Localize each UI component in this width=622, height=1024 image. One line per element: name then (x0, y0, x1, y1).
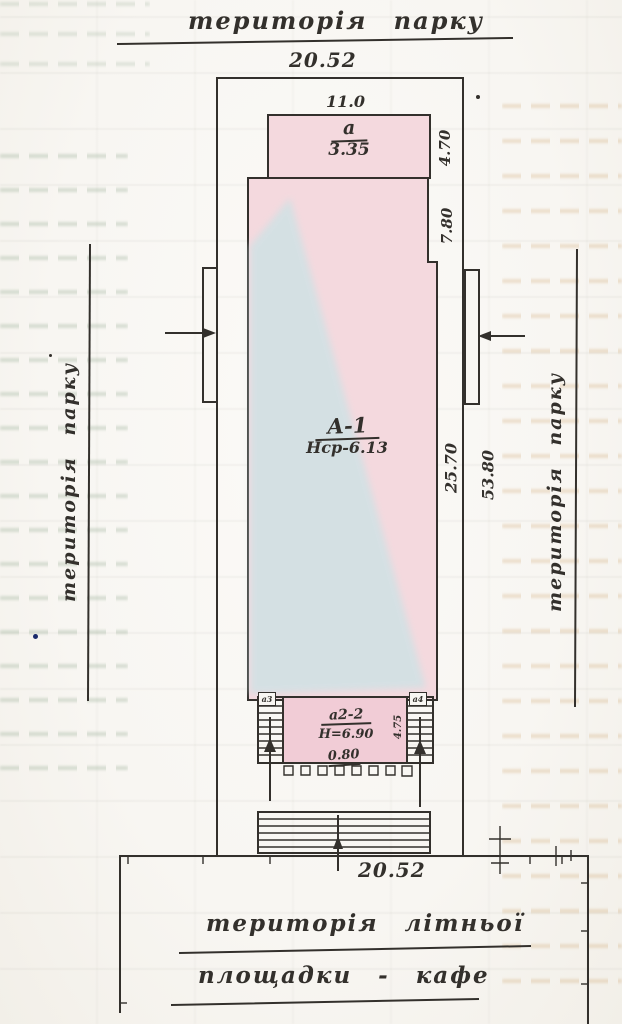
dim-building-length: 25.70 (444, 443, 461, 493)
benchmark-marks (489, 826, 580, 874)
entry-slab-right (465, 270, 479, 404)
stair-right-label: а4 (409, 692, 427, 706)
park-territory-right-label: територія парку (546, 372, 566, 612)
plan-linework (0, 0, 622, 1024)
cafe-territory-label-line2: площадки - кафе (198, 964, 490, 988)
cafe-underline-1 (180, 946, 530, 953)
stair-arrowhead-left (264, 738, 276, 752)
park-territory-top-label: територія парку (188, 8, 484, 33)
park-left-underline (88, 245, 90, 700)
main-building-label: А-1 (314, 414, 379, 441)
dim-plot-width-bottom: 20.52 (358, 860, 426, 881)
porch-height: Н=6.90 (319, 727, 374, 742)
annex-area: 3.35 (328, 140, 369, 160)
park-territory-left-label: територія парку (60, 362, 80, 602)
dim-annex-width: 11.0 (326, 94, 365, 111)
porch-columns (284, 766, 412, 776)
dim-porch-depth: 4.75 (394, 715, 405, 739)
dim-site-length: 53.80 (481, 450, 498, 500)
dim-leader-arrowhead (333, 836, 343, 849)
title-underline (118, 38, 512, 44)
stair-left-label: а3 (258, 692, 276, 706)
porch-label: а2-2 (321, 707, 372, 725)
stair-arrowhead-right (414, 740, 426, 754)
terrace-steps (259, 819, 429, 847)
main-building-label-stack: А-1 Нср-6.13 (302, 415, 392, 457)
dim-plot-width-top: 20.52 (289, 50, 357, 71)
dim-porch-pitch: 0.80 (327, 748, 360, 767)
cafe-underline-2 (172, 999, 478, 1005)
annex-letter: а (330, 118, 367, 142)
park-right-underline (575, 250, 577, 706)
cafe-boundary (120, 856, 588, 1024)
cafe-territory-label-line1: територія літньої (206, 912, 525, 936)
dim-annex-depth: 4.70 (438, 130, 454, 167)
scanned-site-plan: територія парку 20.52 11.0 а 3.35 4.70 7… (0, 0, 622, 1024)
dim-notch-depth: 7.80 (440, 208, 456, 245)
annex-top-label-stack: а 3.35 (316, 119, 382, 160)
porch-label-stack: а2-2 Н=6.90 (308, 706, 384, 741)
